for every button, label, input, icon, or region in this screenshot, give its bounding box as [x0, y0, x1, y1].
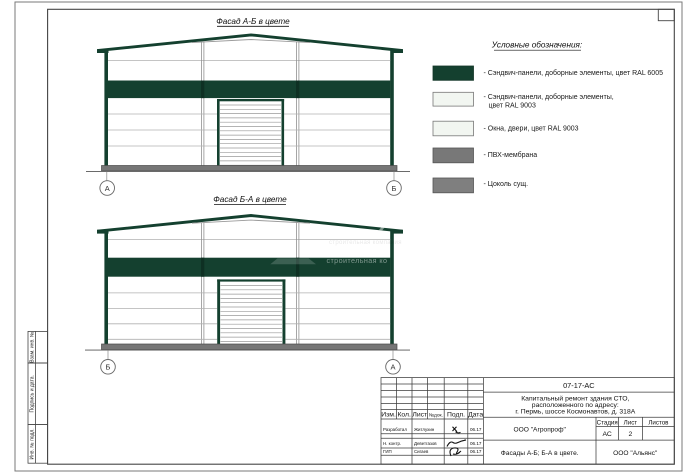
svg-text:Фасад Б-А в цвете: Фасад Б-А в цвете	[213, 195, 287, 204]
svg-text:Изм.: Изм.	[381, 412, 396, 419]
svg-text:- ПВХ-мембрана: - ПВХ-мембрана	[484, 151, 538, 159]
svg-text:07-17-АС: 07-17-АС	[563, 381, 595, 390]
svg-text:2: 2	[629, 431, 633, 438]
svg-text:Подпись и дата.: Подпись и дата.	[29, 375, 35, 412]
svg-text:Инв. № подл.: Инв. № подл.	[29, 428, 35, 459]
svg-text:ГИП: ГИП	[383, 449, 392, 454]
svg-text:Житлухин: Житлухин	[414, 427, 435, 432]
svg-text:А: А	[105, 184, 110, 193]
svg-text:Стадия: Стадия	[597, 419, 618, 426]
svg-text:Разработал: Разработал	[383, 427, 407, 432]
svg-text:Кол.: Кол.	[397, 412, 411, 419]
svg-text:- Сэндвич-панели, доборные эле: - Сэндвич-панели, доборные элементы, цве…	[484, 69, 664, 77]
svg-text:Фасады А-Б; Б-А в цвете.: Фасады А-Б; Б-А в цвете.	[501, 450, 579, 457]
svg-text:Б: Б	[106, 363, 111, 372]
svg-text:цвет RAL 9003: цвет RAL 9003	[489, 102, 536, 109]
svg-text:06.17: 06.17	[470, 449, 482, 454]
svg-text:ООО "Альянс": ООО "Альянс"	[613, 450, 658, 457]
svg-text:АС: АС	[603, 431, 612, 438]
svg-text:Фасад А-Б в цвете: Фасад А-Б в цвете	[216, 17, 290, 26]
svg-text:06.17: 06.17	[470, 427, 482, 432]
svg-text:Н. контр.: Н. контр.	[383, 441, 401, 446]
svg-text:Лист: Лист	[624, 419, 638, 426]
svg-text:Сигаев: Сигаев	[414, 449, 429, 454]
svg-text:г. Пермь, шоссе Космонавтов, д: г. Пермь, шоссе Космонавтов, д. 318А	[515, 408, 635, 415]
svg-text:№док.: №док.	[429, 412, 443, 418]
svg-text:Условные обозначения:: Условные обозначения:	[491, 41, 582, 50]
svg-text:- Окна, двери, цвет RAL 9003: - Окна, двери, цвет RAL 9003	[484, 125, 579, 132]
svg-text:ООО "Агропроф": ООО "Агропроф"	[514, 427, 567, 434]
svg-text:А: А	[390, 363, 395, 372]
svg-text:Подп.: Подп.	[447, 412, 465, 419]
svg-text:Взам. инв. №: Взам. инв. №	[29, 332, 35, 363]
svg-text:Б: Б	[392, 184, 397, 193]
svg-text:- Сэндвич-панели, доборные эле: - Сэндвич-панели, доборные элементы,	[484, 93, 614, 101]
svg-text:Листов: Листов	[648, 419, 669, 426]
svg-text:Дата: Дата	[468, 412, 483, 419]
svg-text:Деветгазов: Деветгазов	[414, 441, 437, 446]
svg-text:- Цоколь сущ.: - Цоколь сущ.	[484, 181, 529, 188]
svg-text:строительная компания: строительная компания	[329, 240, 402, 246]
svg-text:Лист: Лист	[412, 412, 427, 419]
svg-text:06.17: 06.17	[470, 441, 482, 446]
